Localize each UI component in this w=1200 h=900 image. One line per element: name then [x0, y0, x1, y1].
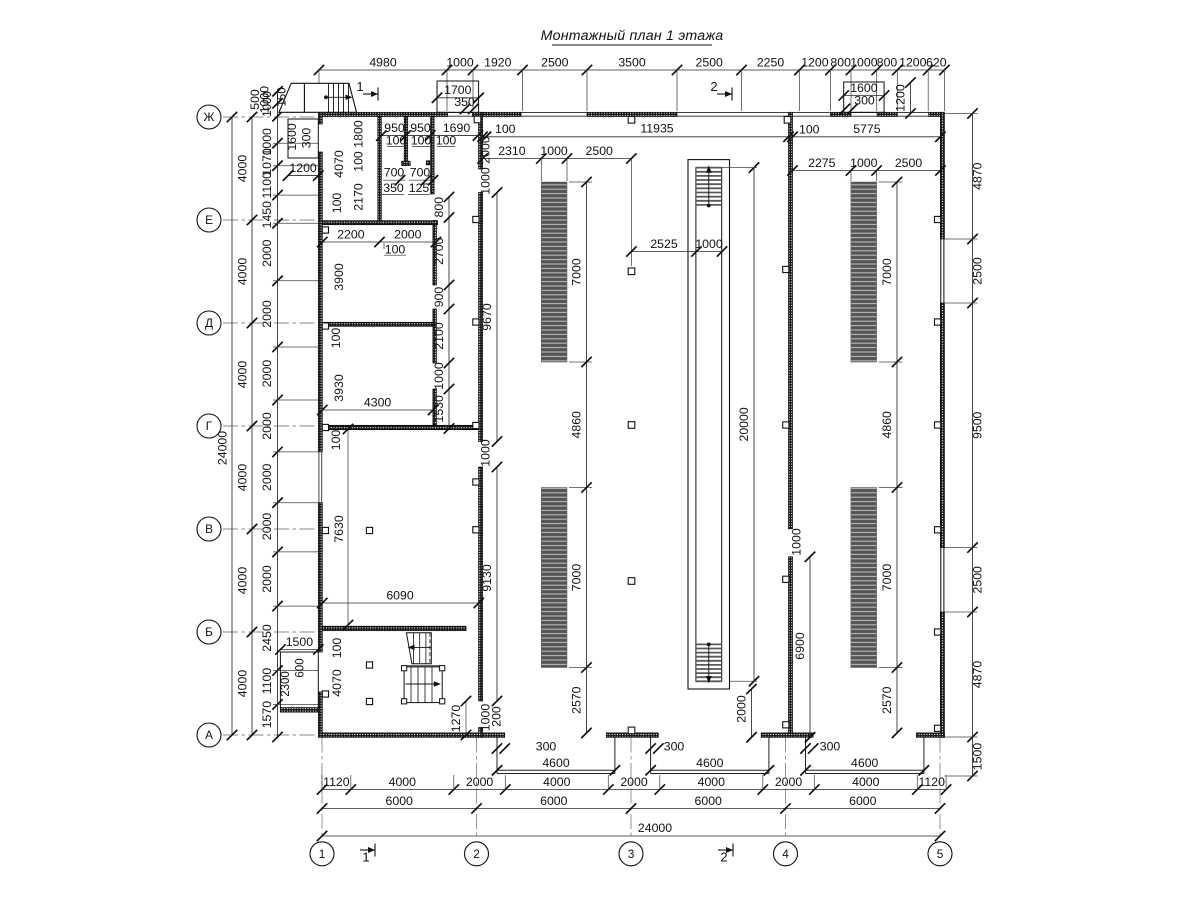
svg-text:1100: 1100	[260, 172, 274, 199]
svg-text:620: 620	[926, 56, 947, 70]
svg-text:1570: 1570	[260, 701, 274, 729]
svg-text:2000: 2000	[260, 300, 274, 328]
svg-text:4000: 4000	[236, 361, 250, 389]
svg-text:200: 200	[490, 706, 504, 727]
svg-text:3: 3	[628, 847, 635, 861]
svg-text:800: 800	[432, 197, 446, 218]
svg-text:4860: 4860	[570, 411, 584, 439]
svg-text:100: 100	[436, 134, 457, 148]
svg-text:7000: 7000	[880, 564, 894, 592]
svg-text:Г: Г	[206, 419, 213, 433]
svg-text:2000: 2000	[260, 239, 274, 267]
svg-text:1000: 1000	[850, 156, 878, 170]
svg-text:1000: 1000	[432, 362, 446, 390]
svg-text:2000: 2000	[620, 775, 648, 789]
svg-text:2000: 2000	[394, 228, 422, 242]
svg-text:24000: 24000	[638, 821, 672, 835]
svg-text:4870: 4870	[971, 661, 985, 689]
svg-text:300: 300	[664, 740, 685, 754]
svg-text:9500: 9500	[971, 411, 985, 439]
svg-text:2000: 2000	[775, 775, 803, 789]
svg-text:5: 5	[937, 847, 944, 861]
svg-text:А: А	[205, 728, 213, 742]
svg-text:2525: 2525	[650, 237, 678, 251]
svg-text:2500: 2500	[895, 156, 923, 170]
svg-text:350: 350	[454, 95, 475, 109]
svg-text:1200: 1200	[893, 84, 907, 112]
svg-text:4000: 4000	[236, 155, 250, 183]
svg-text:2500: 2500	[696, 56, 724, 70]
svg-text:1000: 1000	[479, 167, 493, 195]
svg-text:500: 500	[248, 89, 262, 110]
svg-text:3930: 3930	[332, 374, 346, 402]
svg-text:7630: 7630	[332, 515, 346, 543]
svg-text:1500: 1500	[971, 743, 985, 771]
svg-text:2300: 2300	[280, 671, 292, 697]
svg-text:2700: 2700	[432, 237, 446, 265]
svg-text:2570: 2570	[570, 686, 584, 714]
svg-text:4070: 4070	[332, 150, 346, 178]
svg-text:2275: 2275	[808, 156, 836, 170]
svg-text:100: 100	[495, 122, 516, 136]
svg-text:300: 300	[536, 740, 557, 754]
svg-text:4000: 4000	[236, 258, 250, 286]
svg-text:2: 2	[710, 79, 717, 94]
svg-text:2000: 2000	[260, 412, 274, 440]
svg-text:24000: 24000	[216, 431, 230, 465]
svg-text:100: 100	[329, 328, 343, 349]
svg-text:3900: 3900	[332, 263, 346, 291]
svg-text:1: 1	[319, 847, 326, 861]
svg-text:2500: 2500	[971, 257, 985, 285]
svg-text:100: 100	[329, 430, 343, 451]
svg-text:4980: 4980	[369, 56, 397, 70]
svg-text:1120: 1120	[323, 775, 350, 789]
svg-text:7000: 7000	[570, 258, 584, 286]
svg-text:2000: 2000	[260, 513, 274, 541]
svg-text:2: 2	[473, 847, 480, 861]
svg-text:100: 100	[385, 243, 406, 257]
svg-text:2500: 2500	[586, 144, 614, 158]
svg-text:4600: 4600	[851, 756, 879, 770]
svg-text:6000: 6000	[540, 794, 568, 808]
svg-text:1000: 1000	[850, 56, 878, 70]
svg-text:2000: 2000	[260, 463, 274, 491]
svg-text:6090: 6090	[386, 589, 414, 603]
svg-text:1200: 1200	[801, 56, 829, 70]
svg-text:В: В	[205, 522, 213, 536]
svg-text:300: 300	[854, 94, 875, 108]
svg-text:2000: 2000	[260, 565, 274, 593]
svg-text:2250: 2250	[757, 56, 785, 70]
svg-text:4000: 4000	[852, 775, 880, 789]
svg-text:125: 125	[409, 181, 430, 195]
svg-text:900: 900	[432, 287, 446, 308]
svg-text:100: 100	[330, 193, 344, 214]
svg-text:100: 100	[799, 123, 820, 137]
svg-text:4070: 4070	[330, 669, 344, 697]
svg-text:9670: 9670	[480, 303, 494, 331]
svg-text:2170: 2170	[352, 183, 366, 211]
svg-text:1000: 1000	[695, 237, 723, 251]
svg-text:4000: 4000	[236, 670, 250, 698]
svg-text:7000: 7000	[570, 564, 584, 592]
svg-text:1070: 1070	[260, 148, 274, 176]
svg-text:1000: 1000	[790, 528, 804, 556]
svg-text:2: 2	[720, 850, 727, 865]
svg-text:4000: 4000	[236, 464, 250, 492]
svg-text:9130: 9130	[480, 564, 494, 592]
svg-text:4000: 4000	[389, 775, 417, 789]
svg-text:700: 700	[410, 166, 431, 180]
svg-text:1270: 1270	[449, 705, 463, 733]
svg-text:4: 4	[782, 847, 789, 861]
svg-text:2570: 2570	[880, 686, 894, 714]
svg-text:100: 100	[411, 134, 432, 148]
svg-text:300: 300	[300, 128, 314, 149]
svg-text:1450: 1450	[260, 201, 274, 229]
svg-text:2500: 2500	[971, 566, 985, 594]
svg-text:Ж: Ж	[204, 110, 215, 124]
svg-text:1200: 1200	[899, 56, 927, 70]
svg-text:2100: 2100	[432, 322, 446, 350]
svg-text:1100: 1100	[260, 668, 274, 695]
svg-text:2000: 2000	[466, 775, 494, 789]
svg-text:2310: 2310	[498, 144, 526, 158]
svg-text:800: 800	[830, 56, 851, 70]
svg-text:Е: Е	[205, 213, 213, 227]
svg-text:1800: 1800	[352, 120, 366, 148]
svg-text:1000: 1000	[540, 144, 568, 158]
svg-text:1000: 1000	[479, 439, 493, 467]
svg-text:Монтажный план 1 этажа: Монтажный план 1 этажа	[541, 28, 724, 44]
svg-text:800: 800	[877, 56, 898, 70]
svg-text:2450: 2450	[260, 624, 274, 652]
svg-text:1920: 1920	[484, 56, 512, 70]
svg-text:4600: 4600	[696, 756, 724, 770]
svg-text:11935: 11935	[640, 121, 673, 135]
svg-text:Б: Б	[205, 625, 213, 639]
svg-text:1500: 1500	[286, 635, 314, 649]
svg-text:100: 100	[330, 638, 344, 659]
svg-text:4860: 4860	[880, 411, 894, 439]
svg-text:100: 100	[386, 134, 407, 148]
svg-text:4000: 4000	[698, 775, 726, 789]
svg-text:1600: 1600	[285, 123, 299, 151]
svg-text:100: 100	[352, 151, 366, 172]
svg-text:4000: 4000	[236, 567, 250, 595]
svg-text:3500: 3500	[618, 56, 646, 70]
svg-text:350: 350	[383, 181, 404, 195]
svg-text:300: 300	[820, 740, 841, 754]
svg-text:2000: 2000	[735, 695, 749, 723]
svg-text:2200: 2200	[337, 228, 365, 242]
svg-text:6900: 6900	[793, 632, 807, 660]
svg-text:2000: 2000	[260, 360, 274, 388]
svg-text:1: 1	[362, 850, 369, 865]
svg-text:1000: 1000	[262, 91, 274, 117]
svg-text:1200: 1200	[289, 161, 317, 175]
svg-text:5775: 5775	[853, 122, 881, 136]
svg-text:7000: 7000	[880, 258, 894, 286]
svg-text:4300: 4300	[364, 396, 392, 410]
svg-text:4000: 4000	[543, 775, 571, 789]
svg-text:Д: Д	[205, 316, 213, 330]
svg-text:1: 1	[356, 79, 363, 94]
svg-text:6000: 6000	[849, 794, 877, 808]
svg-text:6000: 6000	[386, 794, 414, 808]
svg-text:4600: 4600	[542, 756, 570, 770]
svg-text:150: 150	[277, 87, 289, 106]
svg-text:1120: 1120	[918, 775, 945, 789]
svg-text:700: 700	[384, 166, 405, 180]
svg-text:4870: 4870	[971, 162, 985, 190]
svg-text:6000: 6000	[695, 794, 723, 808]
svg-text:1000: 1000	[446, 56, 474, 70]
svg-text:2500: 2500	[541, 56, 569, 70]
svg-text:600: 600	[294, 658, 306, 677]
svg-text:20000: 20000	[737, 407, 751, 441]
